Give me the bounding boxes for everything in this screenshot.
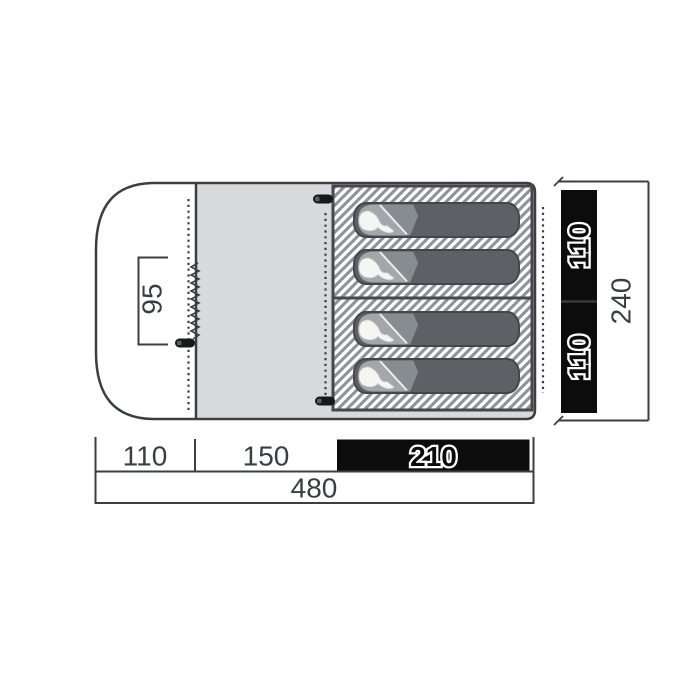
sleeping-bag-2	[354, 250, 519, 284]
zipper-pull-icon	[175, 339, 195, 348]
cabin-depth-label-top: 110	[564, 223, 595, 268]
living-length-label: 150	[243, 441, 290, 472]
zipper-pull-icon	[315, 397, 335, 406]
door-width-label: 95	[137, 283, 168, 314]
zipper-pull-icon	[313, 195, 333, 204]
sleeping-bag-3	[354, 312, 519, 346]
cabin-depth-label-bottom: 110	[564, 334, 595, 379]
sleeping-bag-1	[354, 203, 519, 237]
porch-length-label: 110	[123, 441, 168, 472]
total-depth-label: 240	[606, 278, 637, 325]
tent-floorplan-diagram: 95 110 110 240 110 150 210 480	[0, 0, 700, 700]
sleeping-length-label: 210	[410, 441, 457, 472]
total-length-label: 480	[291, 473, 338, 504]
sleeping-bag-4	[354, 359, 519, 393]
